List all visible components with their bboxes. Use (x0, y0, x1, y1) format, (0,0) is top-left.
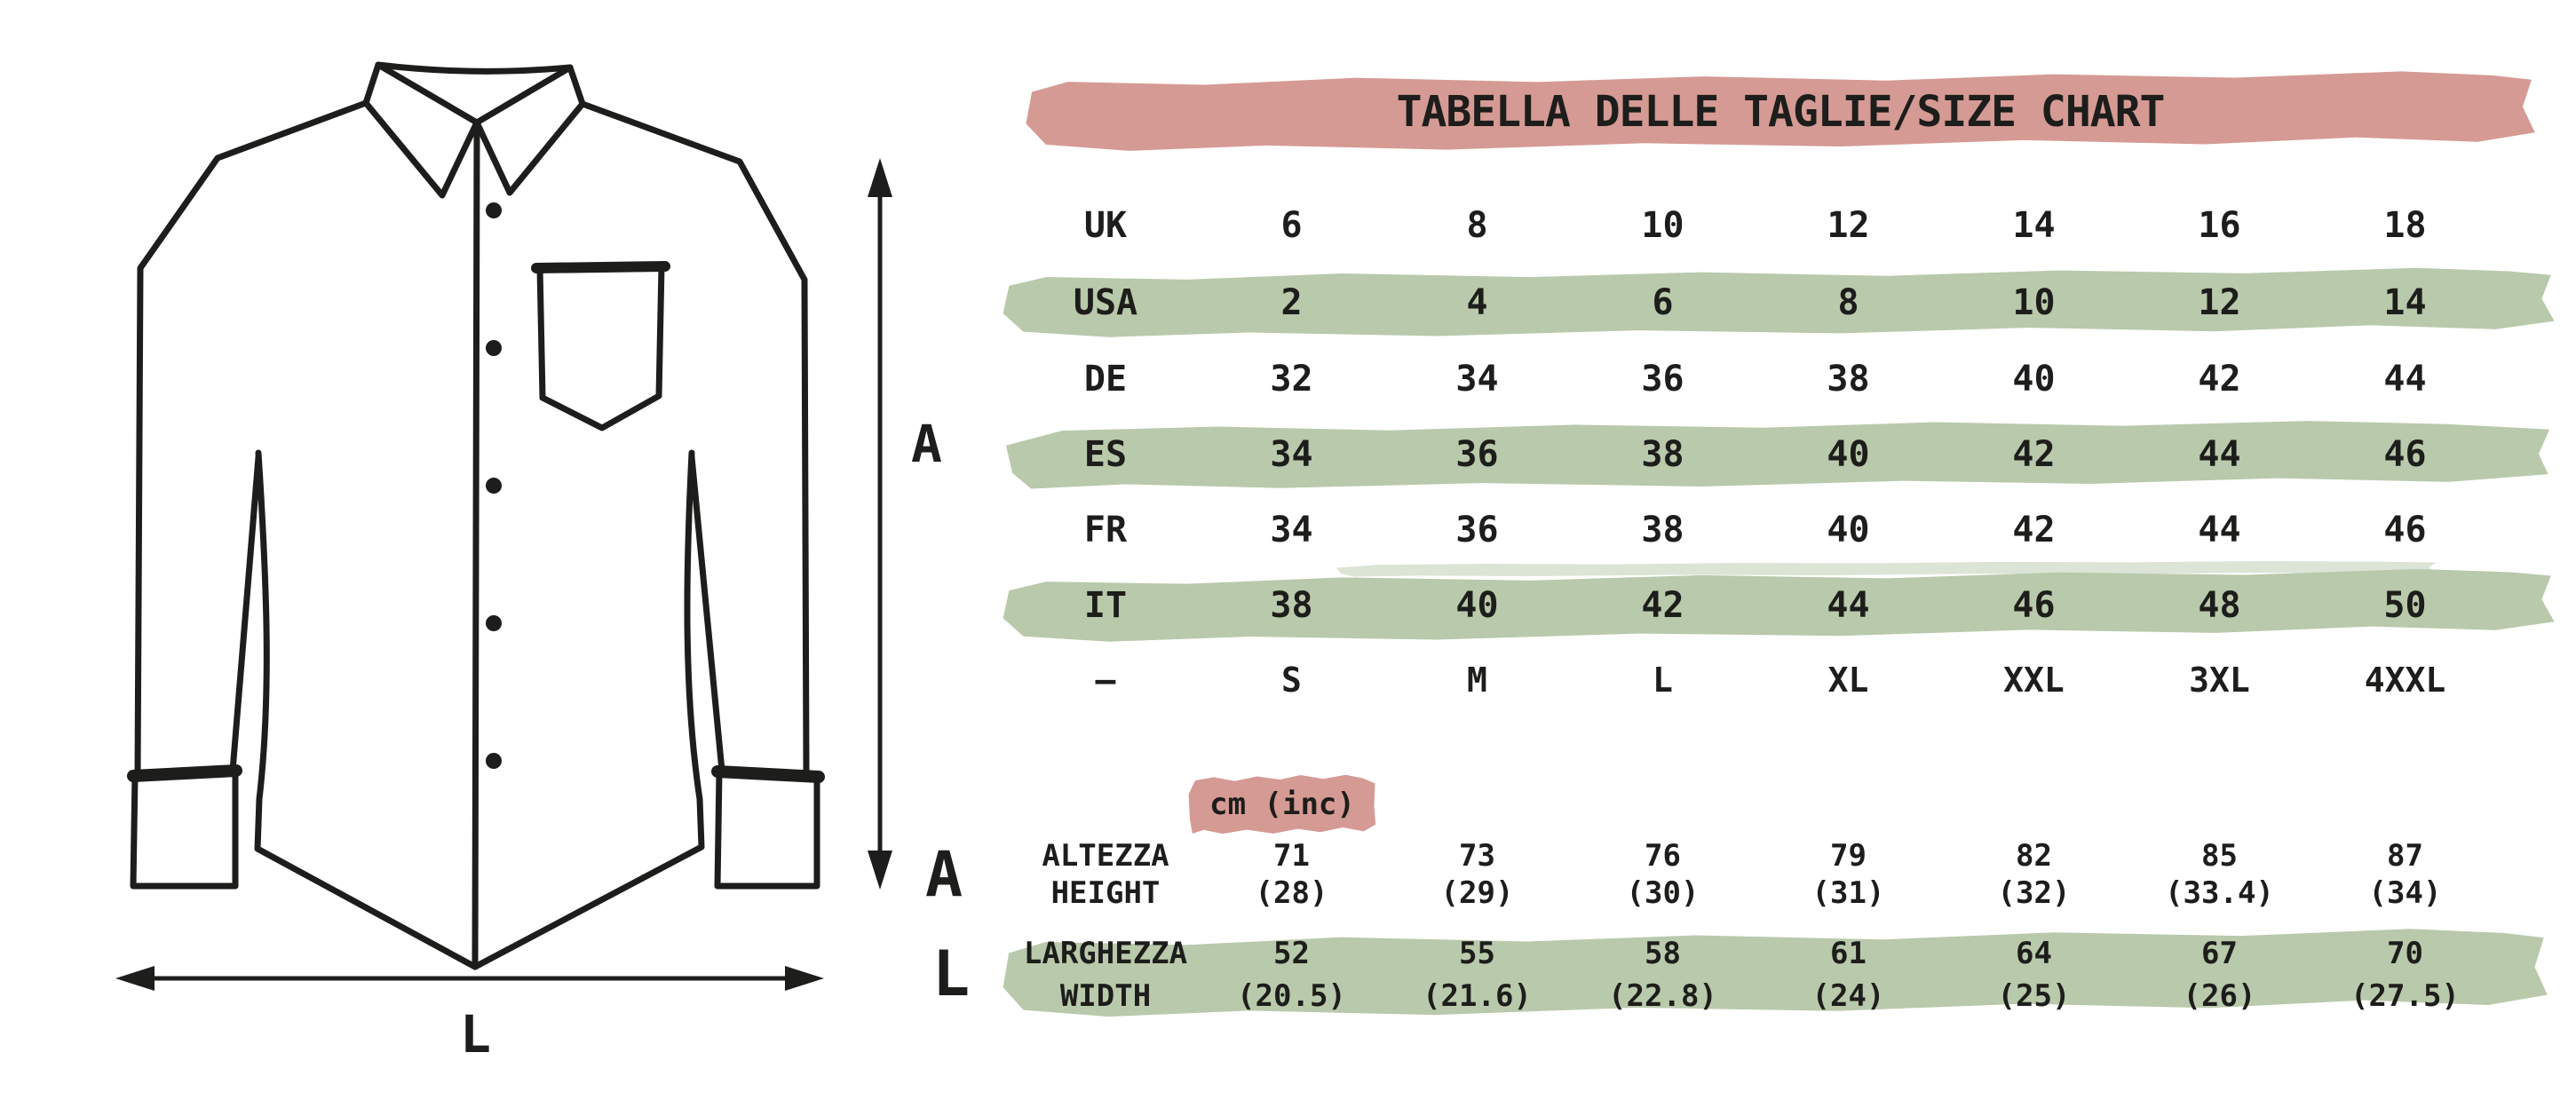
measurement-inch-value: (33.4) (2127, 874, 2312, 912)
size-value: 8 (1384, 205, 1570, 246)
size-value: 48 (2127, 585, 2312, 626)
size-value: 38 (1756, 359, 1941, 400)
size-table-row: IT38404244464850 (1012, 567, 2498, 644)
measurement-letter: L (932, 943, 970, 1005)
size-value: 42 (1941, 510, 2127, 550)
size-value: 40 (1756, 434, 1941, 475)
size-value: 46 (2312, 434, 2498, 475)
size-table-row: USA2468101214 (1012, 265, 2498, 341)
size-value: 18 (2312, 205, 2498, 246)
measurement-cm-value: 61 (1756, 935, 1941, 972)
height-arrow (868, 158, 892, 890)
measurement-inch-value: (27.5) (2312, 977, 2498, 1015)
width-arrow (115, 966, 824, 991)
size-value: 44 (1756, 585, 1941, 626)
size-value: S (1199, 661, 1384, 700)
size-value: 6 (1199, 205, 1384, 246)
size-value: 44 (2127, 434, 2312, 475)
size-value: 44 (2127, 510, 2312, 550)
shirt-diagram: A L (0, 0, 1030, 1100)
unit-label: cm (inc) (1188, 774, 1376, 835)
size-value: 34 (1199, 434, 1384, 475)
size-value: 46 (2312, 510, 2498, 550)
size-row-label: ES (1012, 434, 1199, 475)
size-value: 10 (1941, 282, 2127, 323)
measurement-letter: A (925, 843, 963, 906)
shirt-left-cuff-band (133, 771, 236, 776)
size-value: 42 (1941, 434, 2127, 475)
size-value: 50 (2312, 585, 2498, 626)
measurement-cm-value: 58 (1570, 935, 1756, 972)
size-value: 10 (1570, 205, 1756, 246)
size-row-label: DE (1012, 359, 1199, 400)
shirt-body-outline (258, 453, 701, 967)
measurement-inch-value: (31) (1756, 874, 1941, 912)
size-value: 40 (1756, 510, 1941, 550)
measurement-inch-value: (28) (1199, 874, 1384, 912)
measurement-label: ALTEZZA (1012, 837, 1199, 874)
size-table-row: FR34363840424446 (1012, 492, 2498, 568)
size-value: 42 (1570, 585, 1756, 626)
size-table-row: UK681012141618 (1012, 187, 2498, 264)
measurement-inch-value: (34) (2312, 874, 2498, 912)
size-value: 34 (1384, 359, 1570, 400)
size-value: 40 (1941, 359, 2127, 400)
measurement-cm-value: 64 (1941, 935, 2127, 972)
size-value: 14 (1941, 205, 2127, 246)
size-table-row: DE32343638404244 (1012, 341, 2498, 417)
measurement-row: LARGHEZZA52555861646770WIDTH(20.5)(21.6)… (1012, 935, 2498, 1015)
size-table-row: –SMLXLXXL3XL4XXL (1012, 642, 2498, 718)
size-value: XL (1756, 661, 1941, 700)
measurement-inch-value: (32) (1941, 874, 2127, 912)
measurement-inch-value: (20.5) (1199, 977, 1384, 1015)
shirt-right-cuff (717, 772, 817, 886)
size-value: 44 (2312, 359, 2498, 400)
shirt-right-sleeve-seam (692, 457, 722, 771)
size-chart-page: A L TABELLA DELLE TAGLIE/SIZE CHART UK68… (0, 0, 2576, 1100)
size-value: 3XL (2127, 661, 2312, 700)
measurement-cm-value: 76 (1570, 837, 1756, 874)
size-row-label: USA (1012, 282, 1199, 323)
measurement-label: LARGHEZZA (1012, 935, 1199, 972)
measurement-inch-value: (30) (1570, 874, 1756, 912)
shirt-buttons (486, 202, 502, 769)
measurement-cm-value: 82 (1941, 837, 2127, 874)
shirt-collar-right-neckline (477, 67, 570, 123)
shirt-placket (475, 123, 477, 967)
height-arrow-label: A (911, 414, 942, 474)
size-value: 42 (2127, 359, 2312, 400)
size-value: XXL (1941, 661, 2127, 700)
width-arrow-label: L (460, 1004, 491, 1064)
shirt-left-sleeve-outline (138, 103, 366, 774)
shirt-collar-top (378, 65, 570, 71)
size-value: 14 (2312, 282, 2498, 323)
measurement-cm-value: 73 (1384, 837, 1570, 874)
shirt-right-sleeve-outline (583, 104, 806, 772)
size-value: 36 (1570, 359, 1756, 400)
size-value: M (1384, 661, 1570, 700)
size-value: 12 (1756, 205, 1941, 246)
shirt-pocket (540, 266, 662, 428)
shirt-collar-left-flap (366, 65, 477, 195)
size-value: 4XXL (2312, 661, 2498, 700)
measurement-cm-value: 55 (1384, 935, 1570, 972)
size-row-label: – (1012, 661, 1199, 700)
size-value: 38 (1199, 585, 1384, 626)
size-value: 12 (2127, 282, 2312, 323)
shirt-collar-right-flap (477, 67, 583, 193)
measurement-label: HEIGHT (1012, 874, 1199, 912)
size-table-row: ES34363840424446 (1012, 416, 2498, 493)
measurement-inch-value: (24) (1756, 977, 1941, 1015)
size-value: 2 (1199, 282, 1384, 323)
size-value: 36 (1384, 510, 1570, 550)
size-value: 32 (1199, 359, 1384, 400)
measurement-cm-value: 67 (2127, 935, 2312, 972)
size-row-label: UK (1012, 205, 1199, 246)
size-value: L (1570, 661, 1756, 700)
measurement-inch-value: (25) (1941, 977, 2127, 1015)
measurement-cm-value: 70 (2312, 935, 2498, 972)
size-value: 38 (1570, 434, 1756, 475)
shirt-right-cuff-band (717, 772, 819, 777)
measurement-label: WIDTH (1012, 977, 1199, 1015)
size-value: 4 (1384, 282, 1570, 323)
size-value: 46 (1941, 585, 2127, 626)
measurement-inch-value: (21.6) (1384, 977, 1570, 1015)
size-value: 34 (1199, 510, 1384, 550)
measurement-inch-value: (22.8) (1570, 977, 1756, 1015)
measurement-cm-value: 52 (1199, 935, 1384, 972)
measurement-inch-value: (26) (2127, 977, 2312, 1015)
measurement-cm-value: 87 (2312, 837, 2498, 874)
page-title: TABELLA DELLE TAGLIE/SIZE CHART (1023, 74, 2538, 149)
size-value: 38 (1570, 510, 1756, 550)
measurement-cm-value: 79 (1756, 837, 1941, 874)
shirt-pocket-hem (536, 266, 665, 268)
size-value: 6 (1570, 282, 1756, 323)
size-value: 16 (2127, 205, 2312, 246)
size-value: 40 (1384, 585, 1570, 626)
measurement-cm-value: 85 (2127, 837, 2312, 874)
measurement-cm-value: 71 (1199, 837, 1384, 874)
shirt-left-cuff (133, 772, 235, 886)
shirt-left-sleeve-seam (233, 457, 258, 771)
size-row-label: IT (1012, 585, 1199, 626)
size-value: 36 (1384, 434, 1570, 475)
measurement-row: ALTEZZA71737679828587HEIGHT(28)(29)(30)(… (1012, 837, 2498, 912)
size-value: 8 (1756, 282, 1941, 323)
size-row-label: FR (1012, 510, 1199, 550)
measurement-inch-value: (29) (1384, 874, 1570, 912)
